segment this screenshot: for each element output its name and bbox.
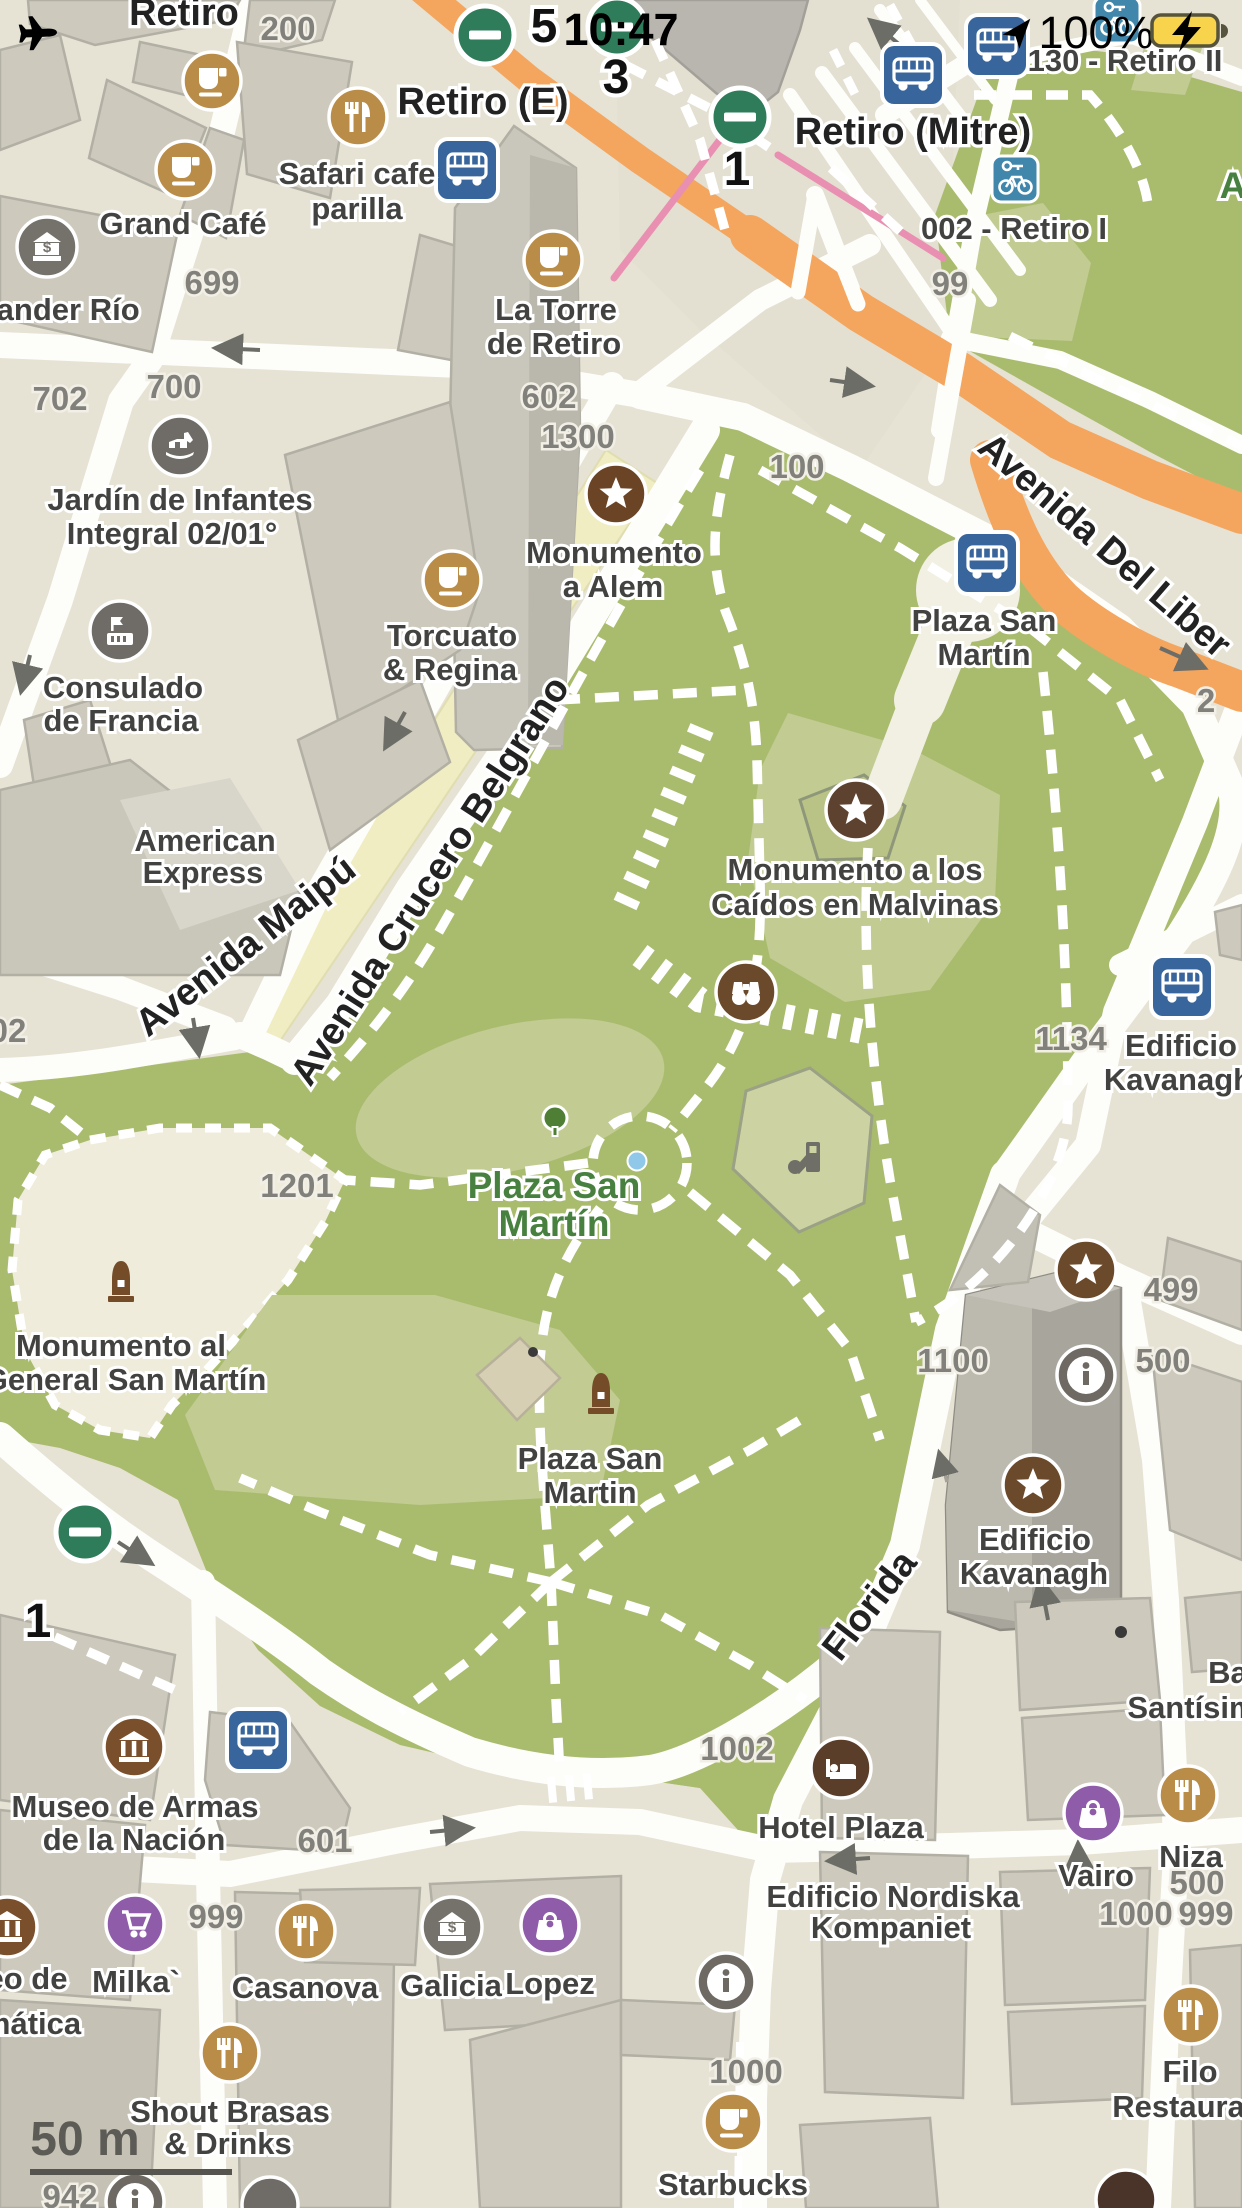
svg-text:Caídos en Malvinas: Caídos en Malvinas [711,887,999,922]
svg-text:Safari cafe: Safari cafe [279,156,436,191]
svg-text:Retiro (E): Retiro (E) [398,81,569,123]
svg-text:2: 2 [1197,682,1215,719]
svg-text:Edificio Nordiska: Edificio Nordiska [766,1879,1020,1914]
svg-text:& Drinks: & Drinks [164,2126,291,2161]
svg-text:Monumento al: Monumento al [16,1328,226,1363]
svg-text:499: 499 [1143,1271,1198,1308]
svg-text:100: 100 [769,448,824,485]
svg-text:Edificio: Edificio [1125,1028,1237,1063]
svg-text:La Torre: La Torre [495,292,617,327]
svg-text:Kavanagh: Kavanagh [960,1556,1108,1591]
svg-text:1: 1 [25,1595,52,1648]
svg-text:Filo: Filo [1162,2054,1217,2089]
svg-text:999: 999 [1178,1895,1233,1932]
svg-text:American: American [134,823,275,858]
svg-text:Monumento: Monumento [526,535,702,570]
svg-text:mática: mática [0,2006,82,2041]
svg-text:Martín: Martín [938,637,1031,672]
svg-text:50 m: 50 m [30,2113,139,2166]
svg-text:999: 999 [188,1898,243,1935]
svg-text:3: 3 [603,51,630,104]
svg-text:1300: 1300 [541,418,614,455]
svg-text:Jardín de Infantes: Jardín de Infantes [47,482,312,517]
svg-text:99: 99 [932,265,969,302]
svg-text:Santísim: Santísim [1127,1690,1242,1725]
svg-text:100%: 100% [1038,7,1153,58]
svg-text:Hotel Plaza: Hotel Plaza [758,1810,924,1845]
svg-text:Plaza San: Plaza San [518,1441,663,1476]
svg-text:parilla: parilla [311,191,403,226]
svg-text:tander Río: tander Río [0,292,140,327]
svg-text:5: 5 [531,0,558,53]
svg-text:Ba: Ba [1208,1655,1242,1690]
svg-text:de Retiro: de Retiro [487,326,621,361]
svg-text:1000: 1000 [709,2053,782,2090]
svg-text:de Francia: de Francia [43,703,199,738]
svg-text:1134: 1134 [1035,1020,1107,1057]
svg-text:Martín: Martín [499,1203,610,1244]
svg-text:eo de: eo de [0,1961,67,1996]
svg-text:Casanova: Casanova [232,1970,379,2005]
svg-text:de la Nación: de la Nación [43,1822,226,1857]
svg-text:1100: 1100 [917,1342,989,1379]
svg-text:Edificio: Edificio [979,1522,1091,1557]
svg-text:Martin: Martin [544,1475,637,1510]
svg-text:Kavanagh: Kavanagh [1104,1062,1242,1097]
svg-text:200: 200 [260,10,315,47]
svg-text:Retiro: Retiro [129,0,239,34]
svg-text:1: 1 [724,143,751,196]
svg-text:1002: 1002 [700,1730,773,1767]
svg-text:Plaza San: Plaza San [468,1165,641,1206]
svg-text:700: 700 [146,368,201,405]
svg-text:500: 500 [1135,1342,1190,1379]
svg-text:Lopez: Lopez [505,1966,595,2001]
svg-text:a Alem: a Alem [563,569,664,604]
svg-text:Milka`: Milka` [92,1964,180,1999]
svg-text:702: 702 [32,380,87,417]
svg-text:Galicia: Galicia [400,1968,502,2003]
svg-text:601: 601 [297,1822,352,1859]
svg-text:002 - Retiro I: 002 - Retiro I [921,211,1107,246]
svg-text:Museo de Armas: Museo de Armas [12,1789,259,1824]
svg-text:Integral 02/01°: Integral 02/01° [67,516,278,551]
svg-text:1000: 1000 [1099,1895,1172,1932]
svg-text:Vairo: Vairo [1058,1858,1134,1893]
svg-text:602: 602 [521,378,576,415]
svg-text:General San Martín: General San Martín [0,1362,266,1397]
svg-text:1201: 1201 [260,1167,333,1204]
svg-text:Restauran: Restauran [1112,2089,1242,2124]
svg-text:10:47: 10:47 [563,4,678,55]
svg-text:Torcuato: Torcuato [387,618,517,653]
svg-text:Monumento a los: Monumento a los [728,852,983,887]
svg-text:Shout Brasas: Shout Brasas [130,2094,330,2129]
svg-text:02: 02 [0,1012,26,1049]
svg-text:942: 942 [42,2178,97,2208]
svg-text:Kompaniet: Kompaniet [811,1910,971,1945]
svg-text:Starbucks: Starbucks [658,2167,808,2202]
svg-text:699: 699 [184,264,239,301]
svg-text:A: A [1220,165,1242,206]
svg-text:Retiro (Mitre): Retiro (Mitre) [795,111,1031,153]
svg-text:Consulado: Consulado [43,670,203,705]
svg-text:& Regina: & Regina [383,652,518,687]
svg-text:Express: Express [143,855,264,890]
svg-text:Grand Café: Grand Café [99,206,266,241]
svg-text:Plaza San: Plaza San [912,603,1057,638]
